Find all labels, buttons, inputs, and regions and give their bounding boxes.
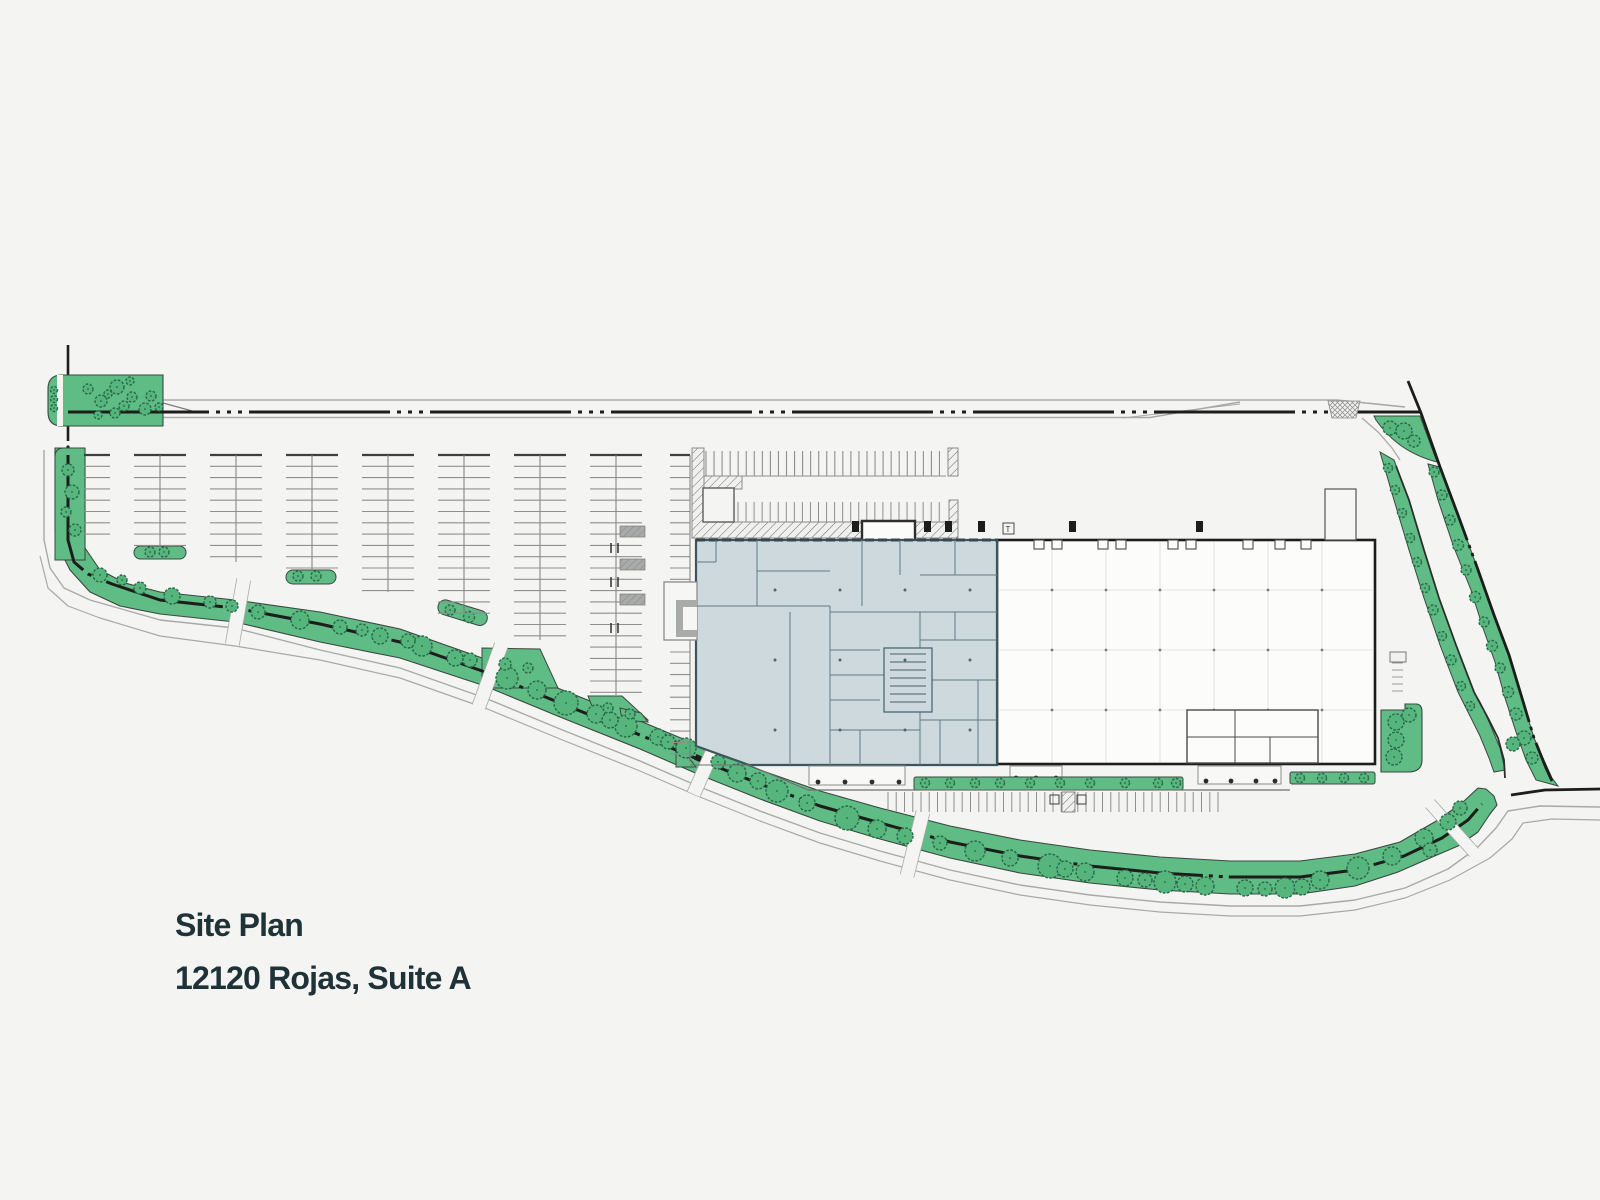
svg-text:Site Plan: Site Plan — [175, 907, 303, 943]
svg-text:T: T — [1006, 525, 1011, 534]
svg-text:12120 Rojas, Suite A: 12120 Rojas, Suite A — [175, 960, 472, 996]
